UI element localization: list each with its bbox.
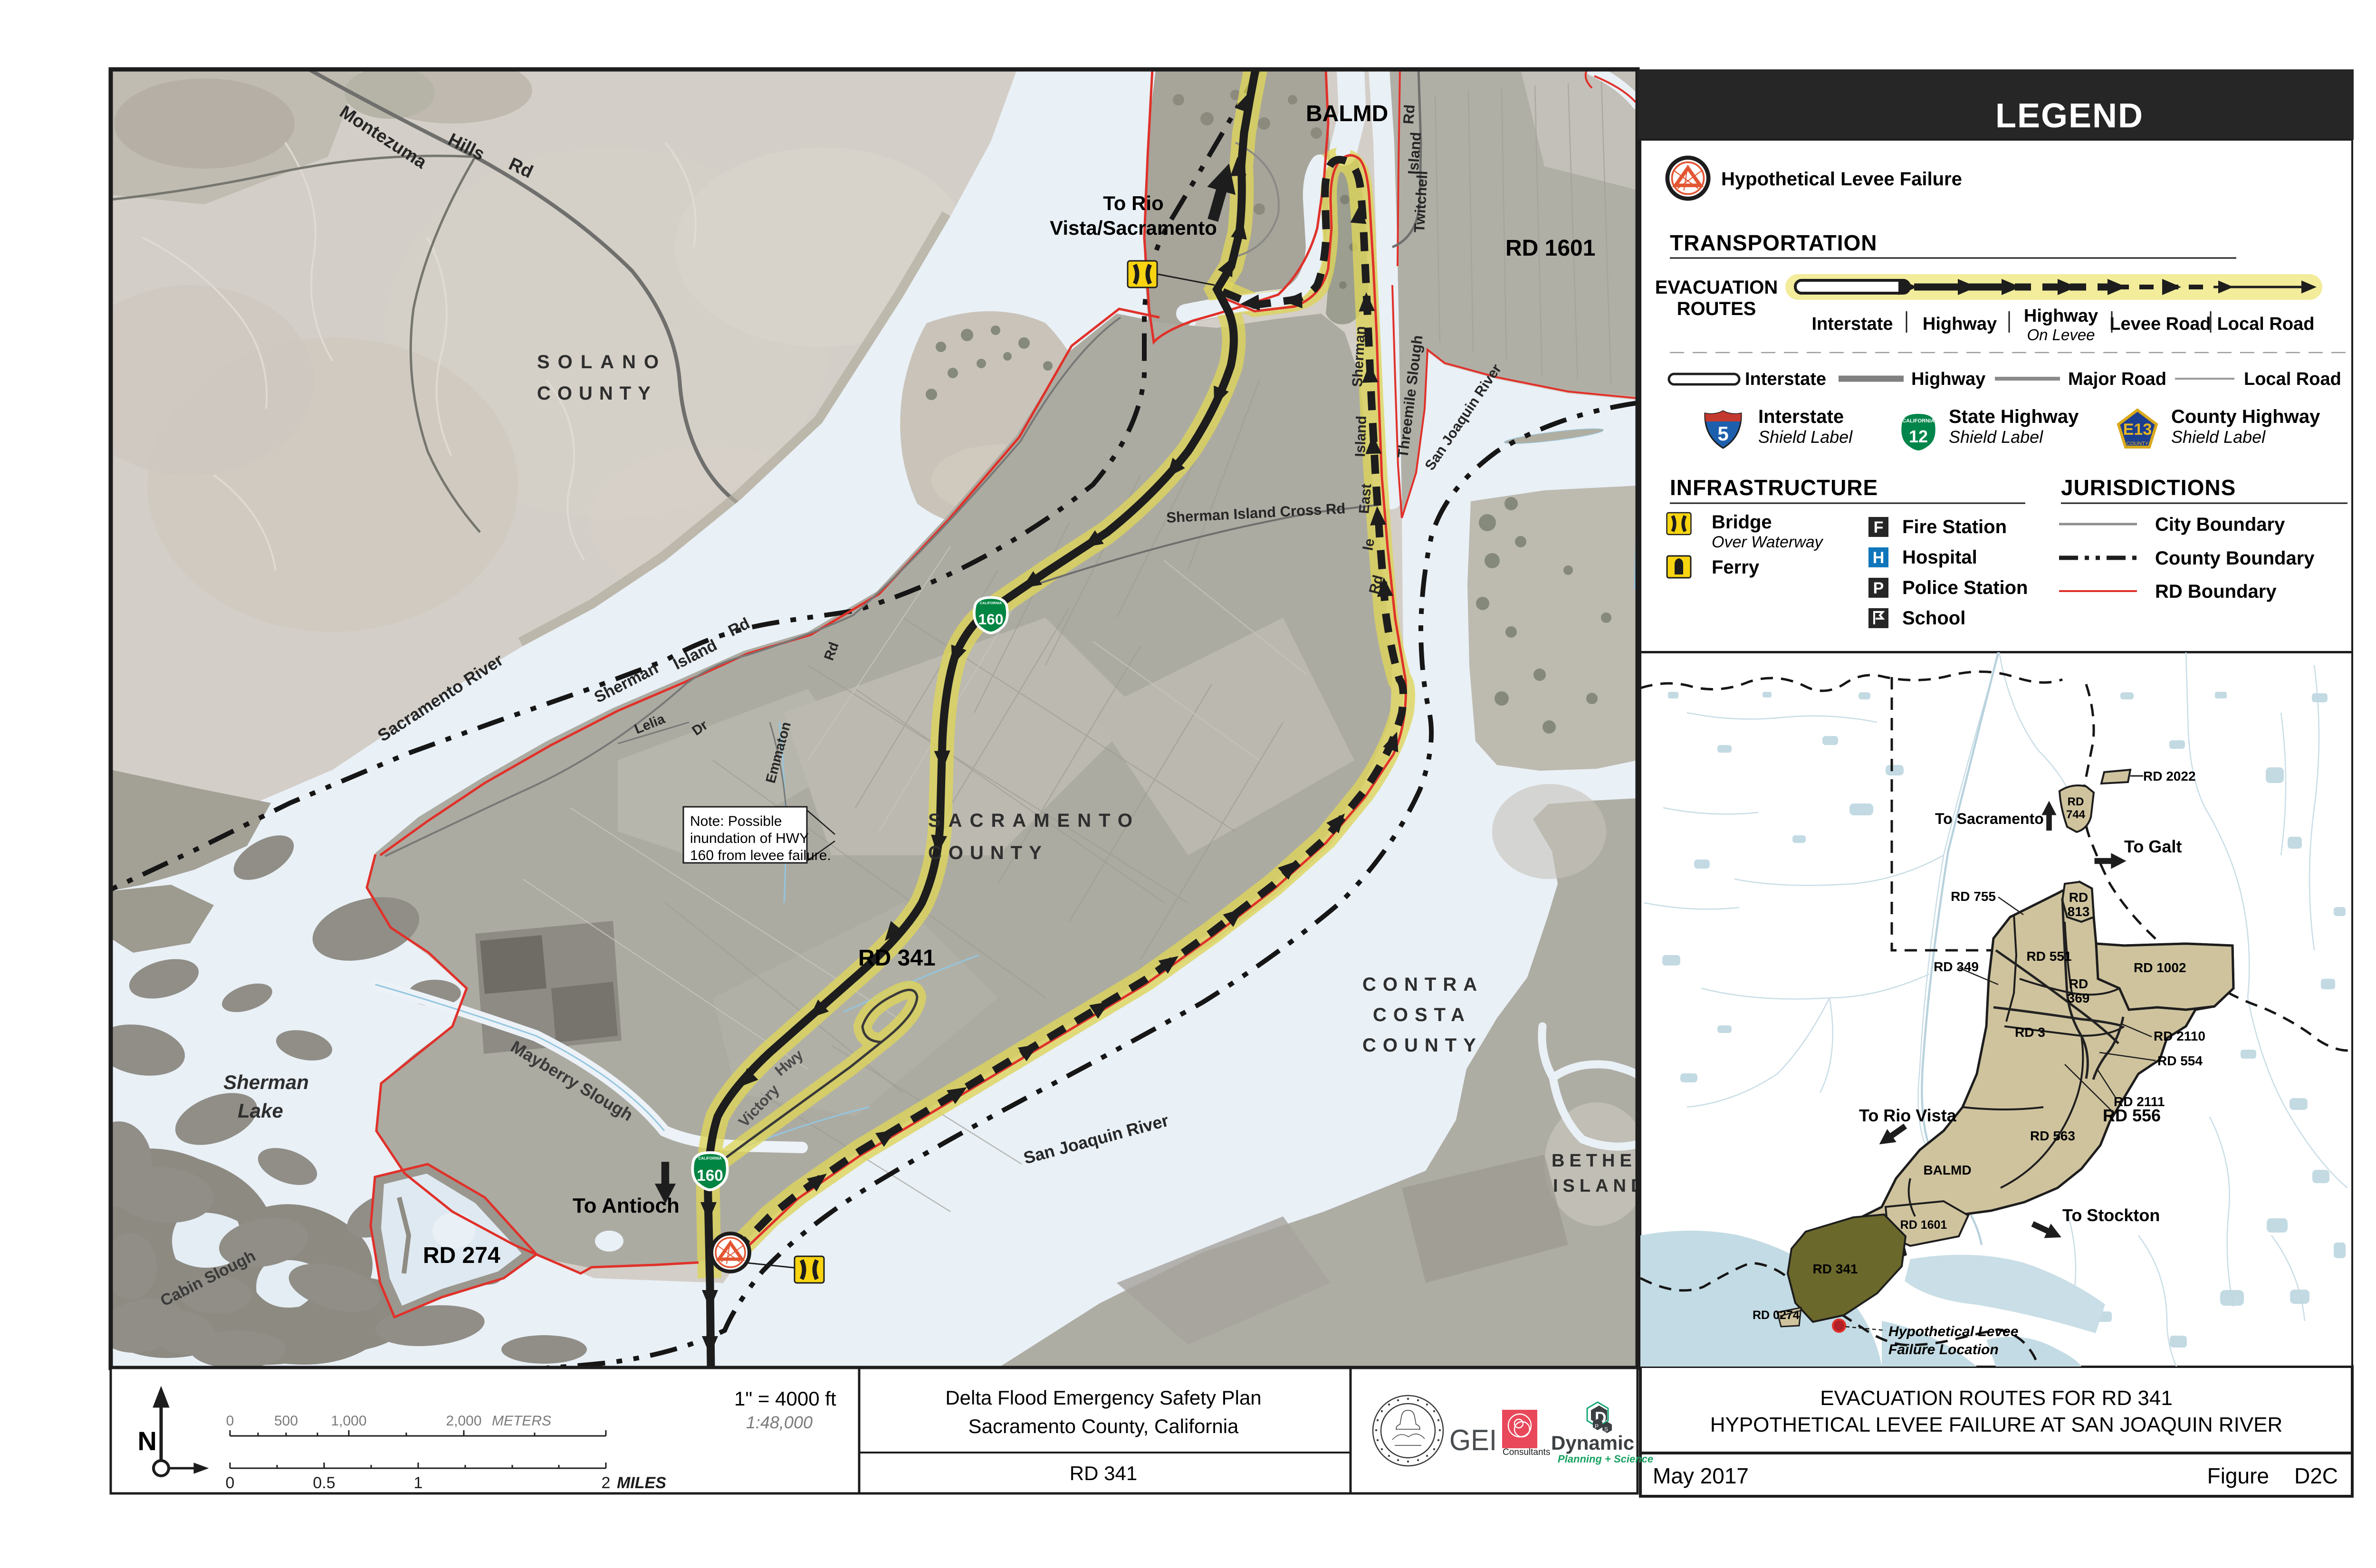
svg-text:1,000: 1,000 bbox=[331, 1413, 366, 1429]
svg-text:Fire Station: Fire Station bbox=[1902, 516, 2007, 537]
svg-text:COUNTY: COUNTY bbox=[2127, 441, 2149, 447]
svg-text:Interstate: Interstate bbox=[1811, 314, 1893, 334]
svg-text:Highway: Highway bbox=[1923, 314, 1997, 334]
svg-text:P: P bbox=[1873, 579, 1884, 597]
svg-text:Planning + Science: Planning + Science bbox=[1558, 1453, 1653, 1465]
svg-text:East: East bbox=[1356, 483, 1374, 515]
svg-text:Consultants: Consultants bbox=[1503, 1447, 1550, 1457]
svg-text:Sacramento County, California: Sacramento County, California bbox=[968, 1415, 1239, 1437]
svg-text:Failure Location: Failure Location bbox=[1888, 1342, 1999, 1358]
svg-text:RD 554: RD 554 bbox=[2157, 1053, 2203, 1068]
svg-text:ROUTES: ROUTES bbox=[1677, 298, 1756, 319]
svg-text:RD 2022: RD 2022 bbox=[2143, 769, 2196, 784]
svg-text:SACRAMENTO: SACRAMENTO bbox=[928, 810, 1140, 831]
svg-text:0: 0 bbox=[226, 1474, 235, 1492]
svg-text:To Rio Vista: To Rio Vista bbox=[1859, 1106, 1957, 1125]
svg-text:Hypothetical Levee: Hypothetical Levee bbox=[1888, 1324, 2018, 1339]
svg-text:H: H bbox=[1873, 549, 1885, 567]
svg-text:0.5: 0.5 bbox=[313, 1474, 335, 1492]
svg-text:Police Station: Police Station bbox=[1902, 577, 2028, 598]
svg-text:Dynamic: Dynamic bbox=[1551, 1432, 1634, 1454]
svg-text:Hospital: Hospital bbox=[1902, 547, 1977, 568]
svg-text:To Rio: To Rio bbox=[1103, 192, 1164, 214]
svg-text:METERS: METERS bbox=[492, 1413, 551, 1429]
svg-text:0: 0 bbox=[226, 1413, 234, 1429]
svg-text:E13: E13 bbox=[2123, 421, 2152, 439]
svg-text:EVACUATION: EVACUATION bbox=[1655, 277, 1778, 298]
svg-text:EVACUATION ROUTES FOR RD 341: EVACUATION ROUTES FOR RD 341 bbox=[1820, 1386, 2173, 1410]
svg-text:COUNTY: COUNTY bbox=[1362, 1035, 1483, 1056]
svg-text:1" = 4000 ft: 1" = 4000 ft bbox=[734, 1387, 836, 1410]
svg-text:HYPOTHETICAL LEVEE FAILURE AT: HYPOTHETICAL LEVEE FAILURE AT SAN JOAQUI… bbox=[1710, 1413, 2283, 1436]
svg-text:inundation of HWY: inundation of HWY bbox=[690, 831, 809, 846]
svg-text:RD 551: RD 551 bbox=[2027, 949, 2072, 964]
svg-text:State Highway: State Highway bbox=[1949, 406, 2079, 427]
svg-text:Sherman: Sherman bbox=[1350, 325, 1369, 387]
svg-text:RD 755: RD 755 bbox=[1951, 889, 1996, 904]
svg-text:RD Boundary: RD Boundary bbox=[2155, 581, 2277, 602]
svg-text:Shield Label: Shield Label bbox=[1758, 427, 1853, 447]
svg-text:Delta Flood Emergency Safety P: Delta Flood Emergency Safety Plan bbox=[945, 1386, 1261, 1409]
svg-text:12: 12 bbox=[1909, 427, 1928, 446]
svg-text:BALMD: BALMD bbox=[1306, 101, 1388, 126]
svg-text:Hypothetical Levee Failure: Hypothetical Levee Failure bbox=[1721, 169, 1962, 190]
svg-text:On Levee: On Levee bbox=[2027, 326, 2095, 344]
svg-text:Note: Possible: Note: Possible bbox=[690, 813, 782, 829]
svg-text:N: N bbox=[138, 1426, 157, 1456]
svg-text:MILES: MILES bbox=[617, 1474, 666, 1492]
svg-text:Shield Label: Shield Label bbox=[2171, 427, 2266, 447]
svg-text:TRANSPORTATION: TRANSPORTATION bbox=[1670, 230, 1878, 255]
svg-text:SOLANO: SOLANO bbox=[537, 352, 667, 373]
svg-text:RD 341: RD 341 bbox=[1813, 1262, 1858, 1276]
svg-text:160 from levee failure.: 160 from levee failure. bbox=[690, 848, 831, 863]
svg-text:369: 369 bbox=[2068, 991, 2090, 1005]
svg-text:May 2017: May 2017 bbox=[1653, 1463, 1749, 1488]
svg-text:Rd: Rd bbox=[1400, 104, 1418, 125]
svg-text:INFRASTRUCTURE: INFRASTRUCTURE bbox=[1670, 475, 1878, 500]
svg-text:RD 341: RD 341 bbox=[858, 946, 936, 971]
svg-text:BALMD: BALMD bbox=[1923, 1163, 1971, 1177]
svg-text:Highway: Highway bbox=[2024, 306, 2098, 326]
svg-text:1:48,000: 1:48,000 bbox=[746, 1413, 813, 1432]
svg-text:RD: RD bbox=[2069, 890, 2088, 905]
svg-text:School: School bbox=[1902, 608, 1965, 629]
svg-text:Local Road: Local Road bbox=[2244, 369, 2341, 389]
svg-text:County Boundary: County Boundary bbox=[2155, 548, 2315, 569]
svg-text:Vista/Sacramento: Vista/Sacramento bbox=[1050, 217, 1217, 239]
svg-text:D2C: D2C bbox=[2294, 1463, 2338, 1488]
svg-text:City Boundary: City Boundary bbox=[2155, 514, 2285, 535]
svg-text:To Galt: To Galt bbox=[2124, 837, 2182, 856]
svg-text:County Highway: County Highway bbox=[2171, 406, 2320, 427]
svg-text:Local Road: Local Road bbox=[2217, 314, 2315, 334]
svg-text:Island: Island bbox=[1405, 132, 1424, 175]
svg-text:Twitchell: Twitchell bbox=[1411, 170, 1431, 233]
svg-text:1: 1 bbox=[414, 1474, 423, 1492]
svg-text:COSTA: COSTA bbox=[1373, 1004, 1471, 1025]
svg-text:Highway: Highway bbox=[1911, 369, 1985, 389]
svg-text:5: 5 bbox=[1717, 422, 1728, 445]
svg-text:2: 2 bbox=[602, 1474, 611, 1492]
svg-text:Bridge: Bridge bbox=[1712, 512, 1772, 533]
svg-text:ISLAND: ISLAND bbox=[1553, 1176, 1648, 1196]
svg-text:744: 744 bbox=[2066, 808, 2086, 821]
svg-text:RD 0274: RD 0274 bbox=[1753, 1309, 1800, 1322]
svg-text:Lake: Lake bbox=[238, 1100, 283, 1122]
svg-text:RD 2110: RD 2110 bbox=[2154, 1029, 2205, 1043]
svg-text:RD: RD bbox=[2069, 976, 2088, 991]
svg-text:813: 813 bbox=[2068, 904, 2090, 919]
svg-text:To Antioch: To Antioch bbox=[573, 1194, 680, 1217]
svg-text:Figure: Figure bbox=[2207, 1463, 2269, 1488]
svg-text:To Sacramento: To Sacramento bbox=[1935, 810, 2044, 827]
svg-text:Interstate: Interstate bbox=[1758, 406, 1844, 427]
svg-text:RD 1601: RD 1601 bbox=[1505, 236, 1595, 261]
svg-text:RD 1002: RD 1002 bbox=[2134, 960, 2186, 975]
svg-text:RD 341: RD 341 bbox=[1070, 1462, 1137, 1484]
svg-text:Sherman: Sherman bbox=[223, 1071, 309, 1093]
svg-text:COUNTY: COUNTY bbox=[928, 842, 1048, 863]
svg-text:COUNTY: COUNTY bbox=[537, 383, 657, 404]
svg-text:RD 1601: RD 1601 bbox=[1900, 1218, 1947, 1232]
svg-text:RD 3: RD 3 bbox=[2015, 1025, 2045, 1040]
svg-text:Over Waterway: Over Waterway bbox=[1712, 533, 1824, 551]
svg-text:Interstate: Interstate bbox=[1745, 369, 1826, 389]
svg-text:RD 556: RD 556 bbox=[2103, 1106, 2161, 1125]
svg-text:JURISDICTIONS: JURISDICTIONS bbox=[2061, 475, 2236, 500]
svg-text:LEGEND: LEGEND bbox=[1995, 97, 2144, 135]
svg-text:CONTRA: CONTRA bbox=[1362, 974, 1484, 995]
svg-text:To Stockton: To Stockton bbox=[2062, 1205, 2160, 1225]
svg-text:CALIFORNIA: CALIFORNIA bbox=[1902, 418, 1935, 424]
svg-text:2,000: 2,000 bbox=[446, 1413, 481, 1429]
svg-text:RD 349: RD 349 bbox=[1934, 959, 1979, 974]
svg-text:Major Road: Major Road bbox=[2068, 369, 2166, 389]
svg-text:RD 274: RD 274 bbox=[423, 1243, 500, 1268]
svg-text:Ferry: Ferry bbox=[1712, 557, 1760, 578]
svg-text:GEI: GEI bbox=[1449, 1424, 1497, 1457]
svg-text:Island: Island bbox=[1352, 415, 1370, 457]
svg-text:RD 563: RD 563 bbox=[2030, 1128, 2075, 1143]
svg-text:500: 500 bbox=[274, 1413, 298, 1429]
svg-text:RD: RD bbox=[2068, 795, 2084, 808]
svg-text:P: P bbox=[1595, 1423, 1599, 1430]
svg-text:Shield Label: Shield Label bbox=[1949, 427, 2043, 447]
svg-text:F: F bbox=[1874, 518, 1884, 536]
svg-text:Levee Road: Levee Road bbox=[2109, 314, 2211, 334]
